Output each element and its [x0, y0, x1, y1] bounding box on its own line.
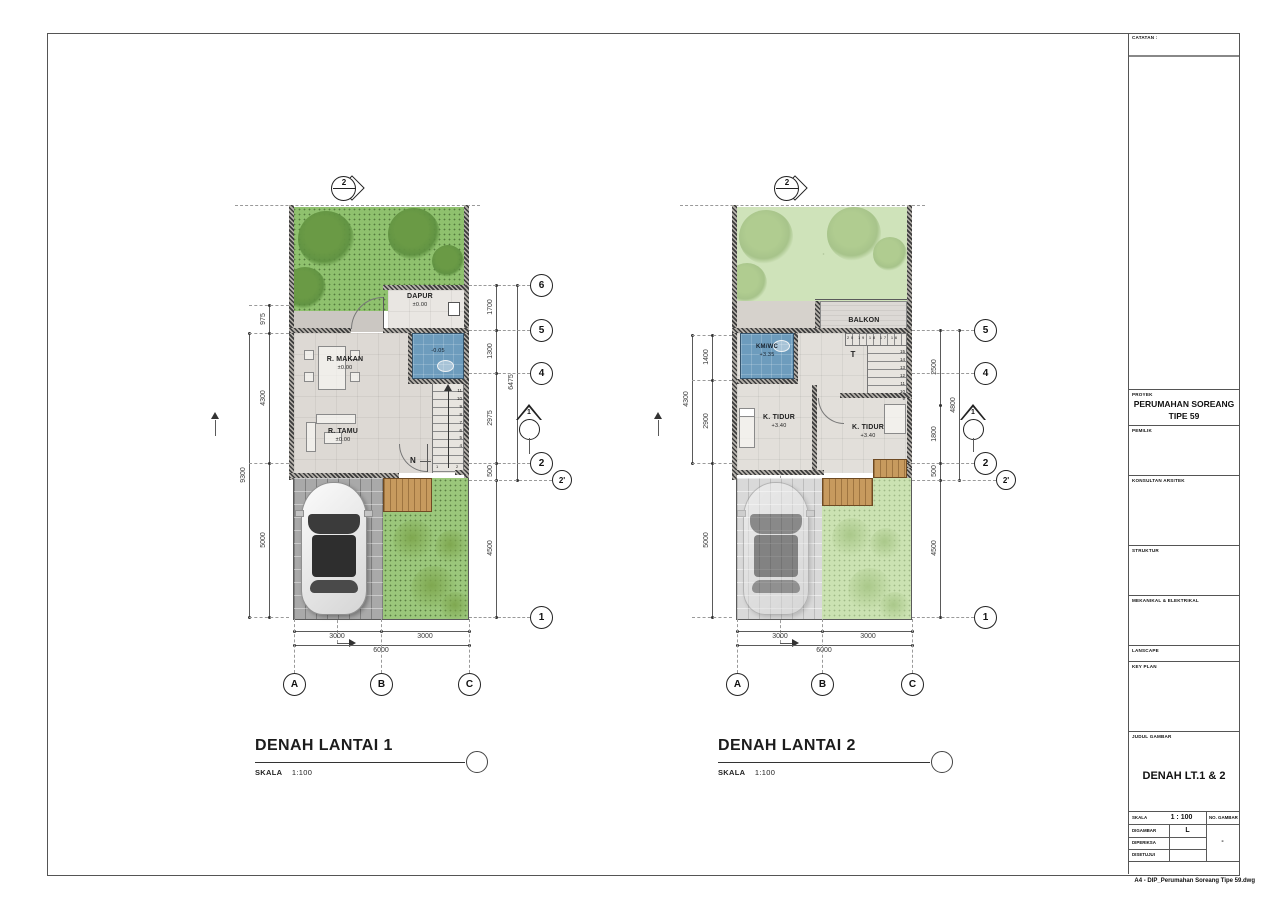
grid-bubble-A: A [726, 673, 749, 696]
grid-bubble-C: C [901, 673, 924, 696]
stair-direction-label: T [846, 350, 860, 360]
room-label-tamu: R. TAMU ±0.00 [298, 428, 388, 444]
shrub-icon [832, 518, 872, 558]
titleblock-struktur: STRUKTUR [1129, 546, 1239, 596]
car-windshield [308, 514, 360, 534]
room-name: DAPUR [407, 293, 433, 300]
room-name: BALKON [848, 317, 879, 324]
grid-line [737, 619, 738, 673]
section-marker-top-icon: 2 [774, 174, 806, 202]
room-elevation: ±0.00 [300, 365, 390, 372]
back-garden-below [735, 207, 912, 301]
section-marker-line [333, 188, 355, 189]
room-name: K. TIDUR [852, 424, 884, 431]
grid-bubble-B: B [811, 673, 834, 696]
room-name: R. MAKAN [327, 356, 364, 363]
dim-label: 4500 [931, 525, 941, 571]
section-marker-number: 2 [331, 178, 357, 187]
grid-line [294, 619, 295, 673]
plot-edge [911, 478, 912, 620]
room-label-kmwc-2: KM/WC +3.35 [740, 344, 794, 358]
section-marker-side-icon: 1 [516, 404, 542, 444]
grid-line [381, 619, 382, 673]
scale-value: 1 : 100 [1159, 814, 1204, 821]
grid-leader [469, 480, 552, 481]
table-line [1129, 849, 1206, 850]
room-elevation: ±0.00 [388, 302, 452, 309]
wall-right [907, 205, 912, 480]
north-arrow-line [215, 420, 216, 436]
chair-icon [350, 372, 360, 382]
dim-extension [692, 463, 732, 464]
toilet-icon [437, 360, 454, 372]
dim-label: 975 [260, 296, 270, 342]
dim-label: 9300 [240, 452, 250, 498]
tree-icon [432, 245, 464, 277]
dim-label: 3000 [845, 633, 891, 640]
titleblock-table: SKALA 1 : 100 DIGAMBAR L DIPERIKSA DISET… [1129, 812, 1239, 862]
room-label-tidur-1: K. TIDUR +3.40 [746, 414, 812, 430]
grid-leader [469, 373, 530, 374]
grid-bubble-6: 6 [530, 274, 553, 297]
dim-label: 4300 [260, 375, 270, 421]
entry-door-leaf [427, 444, 428, 472]
stair-step-number: 2 [456, 464, 458, 469]
car-icon [743, 482, 809, 615]
wall-kmwc-bottom [737, 379, 798, 384]
grid-bubble-5: 5 [530, 319, 553, 342]
tree-icon [873, 237, 907, 271]
section-marker-top-icon: 2 [331, 174, 363, 202]
grid-bubble-2p: 2' [996, 470, 1016, 490]
dim-label: 3000 [314, 633, 360, 640]
title-underline [255, 762, 465, 763]
dim-extension [692, 380, 732, 381]
dim-label: 1300 [487, 328, 497, 374]
titleblock-catatan: CATATAN : [1129, 33, 1239, 57]
room-label-balkon: BALKON [822, 317, 906, 326]
titleblock-judul: JUDUL GAMBAR DENAH LT.1 & 2 [1129, 732, 1239, 812]
property-line [235, 205, 480, 206]
dim-label: 5000 [260, 517, 270, 563]
grid-leader [469, 330, 530, 331]
room-kmwc-1 [412, 333, 464, 379]
project-name: PERUMAHAN SOREANG TIPE 59 [1129, 399, 1239, 423]
north-arrow-line [658, 420, 659, 436]
room-label-kmwc-1: -0.05 [412, 348, 464, 355]
wall-dapur-top [383, 285, 469, 290]
section-marker-number: 1 [516, 409, 542, 416]
drawing-number-value: - [1206, 838, 1239, 845]
stair-up-arrow-icon [444, 384, 452, 391]
grid-bubble-C: C [458, 673, 481, 696]
car-mirror [364, 510, 373, 517]
room-label-dapur: DAPUR ±0.00 [388, 293, 452, 309]
wood-deck-2 [822, 478, 873, 506]
drawing-sheet: 2 DAPUR ±0.00 -0.05 [0, 0, 1280, 904]
wood-deck-2b [873, 459, 907, 478]
dim-extension [692, 617, 732, 618]
stair-step-numbers-top: 20 19 18 17 16 [847, 335, 899, 340]
titleblock-mekanikal: MEKANIKAL & ELEKTRIKAL [1129, 596, 1239, 646]
title-underline [718, 762, 930, 763]
grid-bubble-B: B [370, 673, 393, 696]
sheet-border [47, 33, 1240, 876]
grid-line [469, 619, 470, 673]
plot-edge [468, 478, 469, 620]
dim-label: 4800 [950, 382, 960, 428]
car-roof [312, 535, 356, 577]
wall-kmwc-right [794, 333, 798, 384]
section-marker-number: 1 [960, 409, 986, 416]
room-name: KM/WC [756, 344, 778, 350]
section-line-elbow [780, 643, 792, 644]
shrub-icon [880, 592, 910, 620]
dim-label: 500 [487, 448, 497, 494]
orientation-arrow-icon [654, 412, 662, 419]
dim-label: 4300 [683, 376, 693, 422]
dim-line [737, 645, 912, 646]
file-reference: A4 - DIP_Perumahan Soreang Tipe 59.dwg [1040, 878, 1255, 884]
sink-icon [448, 302, 460, 316]
plot-edge [736, 478, 737, 620]
shrub-icon [870, 528, 902, 560]
orientation-arrow-icon [211, 412, 219, 419]
table-line [1129, 837, 1206, 838]
room-elevation: -0.05 [431, 348, 445, 354]
grid-leader [912, 617, 974, 618]
property-line [680, 205, 925, 206]
dim-label: 3000 [402, 633, 448, 640]
room-label-makan: R. MAKAN ±0.00 [300, 356, 390, 372]
table-line [1206, 812, 1207, 862]
dim-label: 2500 [931, 344, 941, 390]
revision-circle-icon [931, 751, 953, 773]
room-label-tidur-2: K. TIDUR +3.40 [835, 424, 901, 440]
table-line [1129, 824, 1239, 825]
dim-extension [692, 335, 732, 336]
grid-bubble-2: 2 [974, 452, 997, 475]
room-elevation: +3.40 [746, 423, 812, 430]
room-name: K. TIDUR [763, 414, 795, 421]
revision-circle-icon [466, 751, 488, 773]
dim-label: 500 [931, 448, 941, 494]
grid-line [822, 619, 823, 673]
car-icon [301, 482, 367, 615]
plan-title-2: DENAH LANTAI 2 [718, 737, 856, 755]
titleblock-keyplan: KEY PLAN [1129, 662, 1239, 732]
dim-line [269, 305, 270, 617]
grid-bubble-1: 1 [974, 606, 997, 629]
tree-icon [388, 208, 440, 260]
stair-run-line [448, 390, 449, 468]
grid-leader [912, 463, 974, 464]
titleblock-konsultan: KONSULTAN ARSITEK [1129, 476, 1239, 546]
plan-scale-1: SKALA 1:100 [255, 768, 312, 777]
dim-extension [249, 305, 289, 306]
drawn-by-value: L [1169, 827, 1206, 834]
titleblock-lanscape: LANSCAPE [1129, 646, 1239, 662]
grid-bubble-2: 2 [530, 452, 553, 475]
grid-bubble-1: 1 [530, 606, 553, 629]
grid-leader [469, 463, 530, 464]
shrub-icon [435, 530, 469, 564]
dim-label: 6475 [508, 359, 518, 405]
section-marker-number: 2 [774, 178, 800, 187]
stair-step-numbers: 11 10 9 8 7 6 5 4 [455, 387, 462, 450]
plan-scale-2: SKALA 1:100 [718, 768, 775, 777]
stair-step-number: 1 [436, 464, 438, 469]
grid-bubble-4: 4 [974, 362, 997, 385]
shrub-icon [393, 520, 435, 562]
grid-leader [912, 373, 974, 374]
grid-leader [912, 480, 996, 481]
grid-bubble-2p: 2' [552, 470, 572, 490]
dim-label: 1400 [703, 334, 713, 380]
room-elevation: ±0.00 [298, 437, 388, 444]
wall-front-stub [455, 470, 469, 475]
wall-kmwc-left [408, 333, 412, 383]
dim-extension [249, 617, 289, 618]
grid-bubble-4: 4 [530, 362, 553, 385]
dim-label: 6000 [801, 647, 847, 654]
dim-tick [939, 404, 942, 407]
balkon-edge [815, 299, 907, 300]
title-block: CATATAN : PROYEK PERUMAHAN SOREANG TIPE … [1128, 33, 1238, 874]
wall-front [732, 470, 824, 475]
grid-leader [469, 285, 530, 286]
titleblock-pemilik: PEMILIK [1129, 426, 1239, 476]
titleblock-notes-area [1129, 57, 1239, 390]
tree-icon [735, 263, 767, 301]
grid-bubble-A: A [283, 673, 306, 696]
car-mirror [295, 510, 304, 517]
tree-icon [292, 267, 326, 309]
door-leaf [383, 297, 384, 329]
dim-extension [249, 333, 289, 334]
grid-leader [469, 617, 530, 618]
car-rear-window [310, 580, 358, 593]
dim-label: 2975 [487, 395, 497, 441]
drawing-title: DENAH LT.1 & 2 [1129, 770, 1239, 782]
wood-deck-1 [383, 478, 432, 512]
grid-leader [912, 330, 974, 331]
dim-label: 2900 [703, 398, 713, 444]
titleblock-proyek: PROYEK PERUMAHAN SOREANG TIPE 59 [1129, 390, 1239, 426]
plan-title-1: DENAH LANTAI 1 [255, 737, 393, 755]
dim-label: 4500 [487, 525, 497, 571]
grid-bubble-5: 5 [974, 319, 997, 342]
tree-icon [739, 210, 793, 264]
section-line-elbow [337, 643, 349, 644]
wall-stair-bottom [840, 393, 912, 398]
sofa-icon [316, 414, 356, 424]
plot-edge [293, 478, 294, 620]
dim-label: 5000 [703, 517, 713, 563]
shrub-icon [441, 592, 469, 620]
wall-right [464, 205, 469, 480]
section-marker-side-icon: 1 [960, 404, 986, 444]
dim-label: 1700 [487, 284, 497, 330]
room-name: R. TAMU [328, 428, 358, 435]
grid-line [912, 619, 913, 673]
room-elevation: +3.35 [740, 352, 794, 359]
chair-icon [304, 372, 314, 382]
room-elevation: +3.40 [835, 433, 901, 440]
plot-edge [736, 619, 912, 620]
wall-bedroom-divider [812, 385, 817, 473]
dim-label: 3000 [757, 633, 803, 640]
dim-extension [249, 463, 289, 464]
tree-icon [298, 211, 354, 267]
dim-line [737, 631, 912, 632]
